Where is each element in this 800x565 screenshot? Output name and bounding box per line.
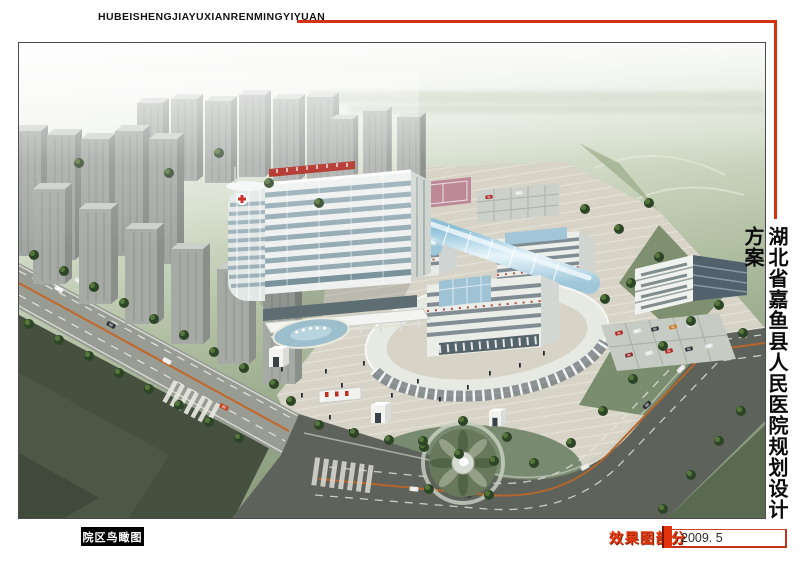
rendering-viewport — [18, 42, 766, 519]
project-title-pinyin: HUBEISHENGJIAYUXIANRENMINGYIYUAN — [98, 11, 325, 23]
red-divider-bar — [662, 526, 672, 548]
footer-right: 效果图部分 2009. 5 — [604, 524, 784, 552]
date-text: 2009. 5 — [681, 531, 723, 545]
accent-line-vertical — [774, 20, 777, 219]
project-title-chinese: 湖北省嘉鱼县人民医院规划设计方案 — [764, 226, 788, 522]
birdseye-rendering — [19, 43, 765, 518]
gatehouse — [269, 346, 289, 367]
gatehouse — [371, 402, 391, 423]
accent-line-horizontal — [297, 20, 777, 23]
view-caption-badge: 院区鸟瞰图 — [81, 527, 144, 546]
city-haze — [19, 73, 419, 253]
view-caption-text: 院区鸟瞰图 — [83, 529, 143, 545]
gatehouse — [489, 408, 506, 426]
date-box: 2009. 5 — [672, 529, 787, 548]
presentation-board: HUBEISHENGJIAYUXIANRENMINGYIYUAN — [0, 0, 800, 565]
